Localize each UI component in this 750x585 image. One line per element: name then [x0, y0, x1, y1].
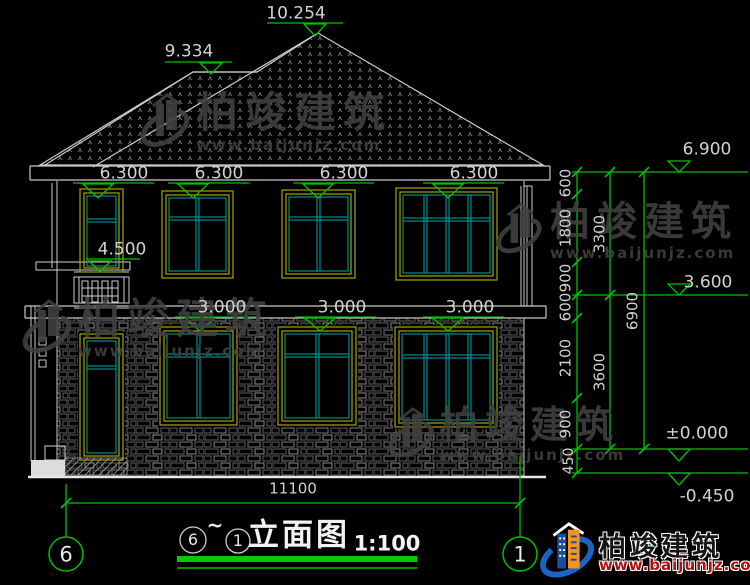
footer-url: www.baijunjz.com: [599, 556, 750, 574]
watermark-logo-icon: [136, 92, 194, 152]
watermark-right: 柏竣建筑 www.baijunjz.com: [492, 202, 738, 261]
title-tilde: ~: [207, 515, 224, 535]
level-f2-window-3: 6.300: [320, 166, 369, 183]
dim-6900: 6900: [626, 292, 641, 330]
level-lower-ridge: 9.334: [165, 44, 214, 61]
title-axis-to: 1: [233, 533, 243, 549]
dim-1800: 1800: [559, 209, 574, 247]
level-eave: 6.900: [683, 142, 732, 159]
watermark-logo-icon: [492, 202, 546, 258]
watermark-roof: 柏竣建筑 www.baijunjz.com: [136, 92, 392, 153]
dim-600-a: 600: [559, 169, 574, 198]
level-f1-window-2: 3.000: [318, 300, 367, 317]
watermark-url: www.baijunjz.com: [440, 448, 625, 463]
level-zero: ±0.000: [666, 426, 729, 443]
dim-450: 450: [562, 448, 576, 475]
watermark-bottom: 柏竣建筑 www.baijunjz.com: [384, 406, 625, 463]
watermark-brand: 柏竣建筑: [440, 406, 625, 444]
level-f2-window-4: 6.300: [450, 166, 499, 183]
watermark-logo-icon: [18, 298, 76, 358]
dim-600-b: 600: [559, 293, 574, 322]
watermark-url: www.baijunjz.com: [550, 246, 738, 261]
level-f1-window-1: 3.000: [198, 300, 247, 317]
axis-bubble-left-label: 6: [59, 545, 72, 566]
drawing-scale: 1:100: [354, 534, 421, 555]
dim-overall-width: 11100: [269, 482, 317, 497]
dim-2100: 2100: [559, 339, 574, 377]
watermark-url: www.baijunjz.com: [196, 138, 392, 153]
level-ridge: 10.254: [266, 6, 325, 23]
dim-900-a: 900: [559, 264, 574, 293]
level-f1-window-3: 3.000: [446, 300, 495, 317]
elevation-drawing-sheet: 柏竣建筑 www.baijunjz.com 柏竣建筑 www.baijunjz.…: [0, 0, 750, 585]
floor2-windows: [80, 188, 497, 280]
level-below-grade: -0.450: [680, 489, 735, 506]
footer-logo-icon: [536, 520, 598, 582]
level-3600: 3.600: [684, 275, 733, 292]
dim-900-b: 900: [559, 410, 574, 439]
dim-3600: 3600: [593, 353, 608, 391]
level-f2-window-1: 6.300: [100, 166, 149, 183]
title-axis-from: 6: [188, 532, 198, 548]
dim-3300: 3300: [593, 215, 608, 253]
level-balcony: 4.500: [98, 242, 147, 259]
level-f2-window-2: 6.300: [195, 166, 244, 183]
watermark-brand: 柏竣建筑: [550, 202, 738, 242]
drawing-title: 立面图: [248, 521, 350, 552]
axis-bubble-right-label: 1: [513, 545, 526, 566]
watermark-logo-icon: [384, 406, 438, 462]
watermark-url: www.baijunjz.com: [78, 344, 274, 359]
watermark-brand: 柏竣建筑: [196, 92, 392, 134]
